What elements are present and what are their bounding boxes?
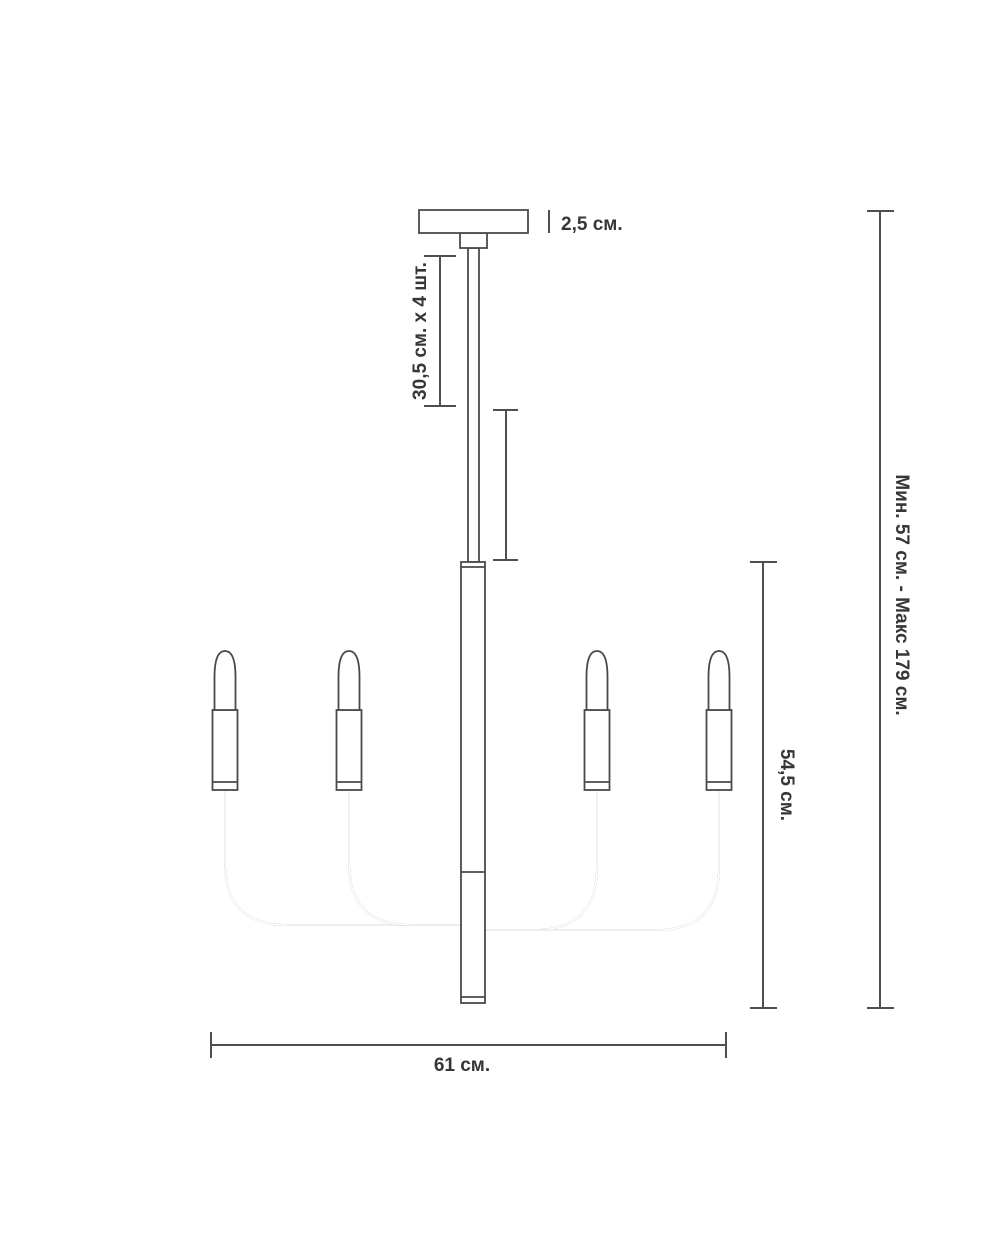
bulb (709, 651, 730, 710)
overall-height-label: Мин. 57 см. - Макс 179 см. (891, 474, 912, 715)
overall-height-dim-line (867, 211, 894, 1008)
rod-lower-dim-line (493, 410, 518, 560)
body-height-dim-line (750, 562, 777, 1008)
candle-4 (707, 651, 732, 790)
arm-outer-right (468, 786, 719, 930)
canopy-connector (460, 233, 487, 248)
central-tube (461, 562, 485, 1003)
ceiling-canopy (419, 210, 528, 233)
arm-inner-right (468, 786, 597, 930)
rod-section-label: 30,5 см. х 4 шт. (410, 262, 431, 400)
chandelier-drawing (213, 210, 732, 1003)
arm-inner-left (349, 786, 478, 925)
diagram-canvas: 2,5 см. 30,5 см. х 4 шт. 54,5 см. Мин. 5… (0, 0, 1000, 1250)
candle-3 (585, 651, 610, 790)
candle-2 (337, 651, 362, 790)
arm-outer-left (225, 786, 478, 925)
bulb (587, 651, 608, 710)
candle-holder (585, 710, 610, 790)
chandelier-dimension-drawing: 2,5 см. 30,5 см. х 4 шт. 54,5 см. Мин. 5… (0, 0, 1000, 1250)
hanging-rod (468, 248, 479, 562)
body-height-label: 54,5 см. (776, 749, 797, 821)
bulb (339, 651, 360, 710)
candle-holder (337, 710, 362, 790)
canopy-height-label: 2,5 см. (561, 214, 623, 235)
width-label: 61 см. (434, 1055, 490, 1076)
candle-holder (213, 710, 238, 790)
candle-1 (213, 651, 238, 790)
bulb (215, 651, 236, 710)
candle-holder (707, 710, 732, 790)
